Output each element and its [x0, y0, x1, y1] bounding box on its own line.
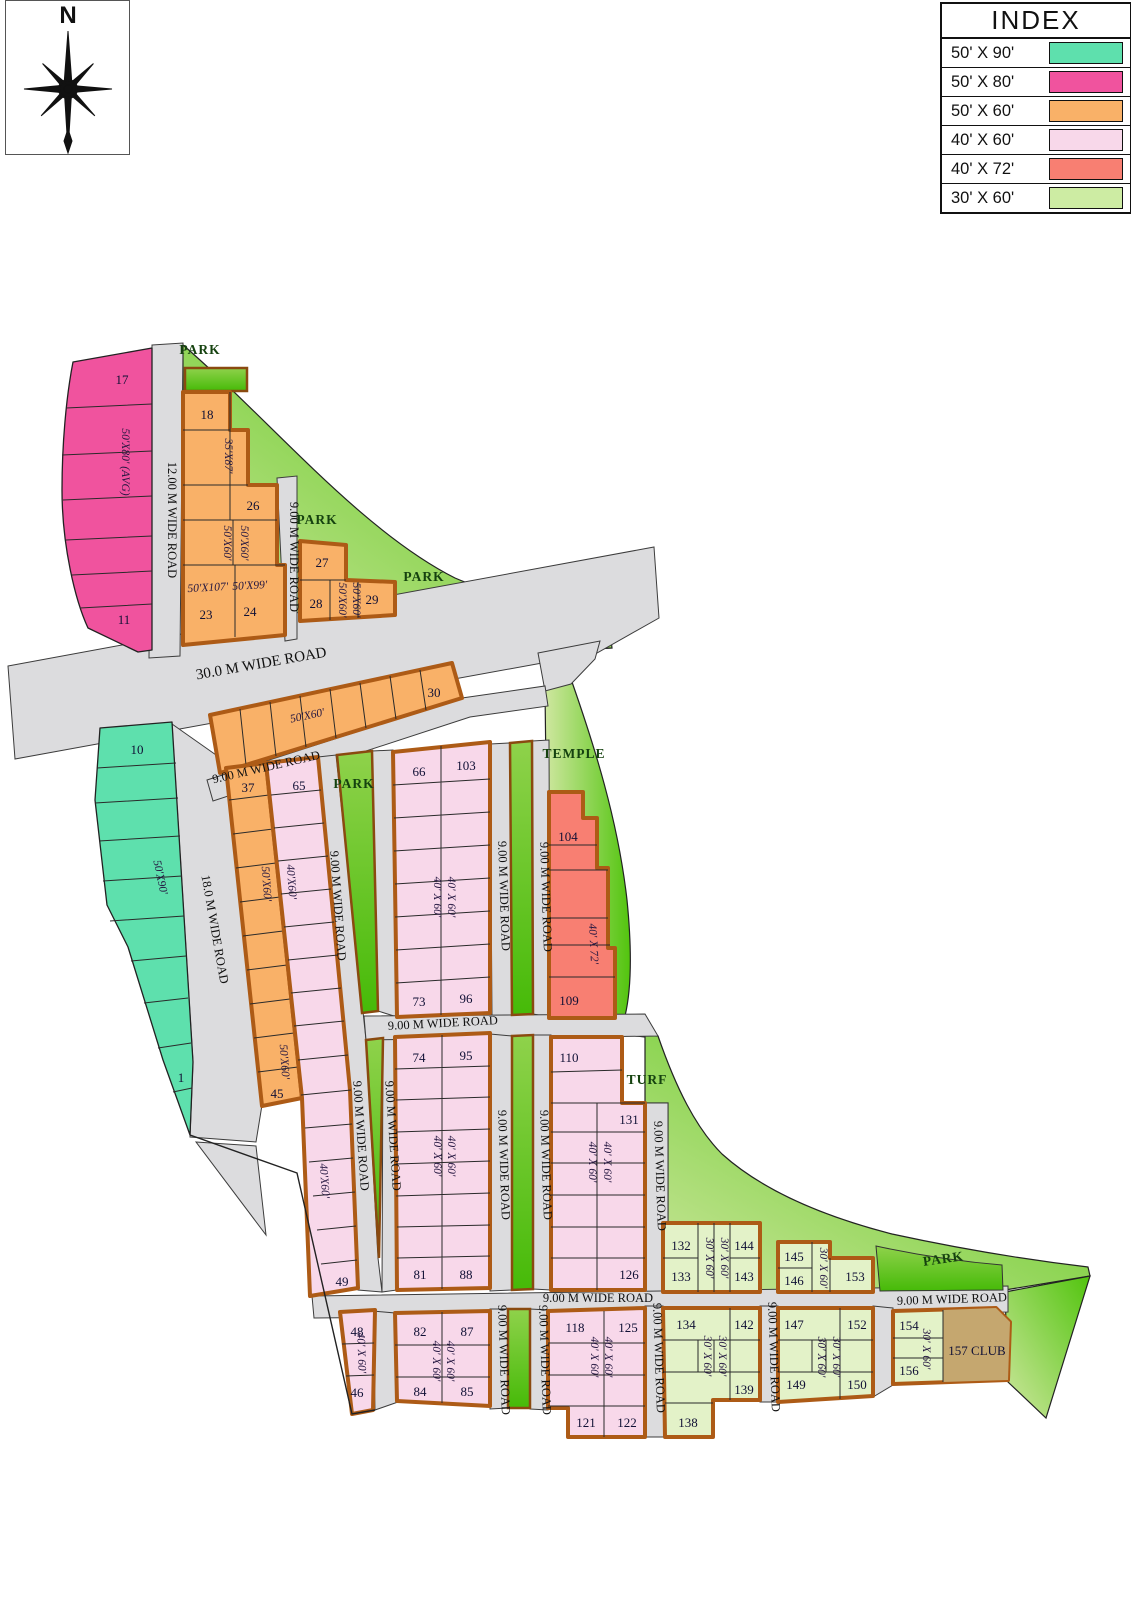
- size-label-40x60: 40' X 60': [602, 1337, 614, 1378]
- plot-46: 46: [351, 1385, 365, 1400]
- plot-30: 30: [428, 685, 441, 700]
- size-label-35x87: 35'X87': [222, 438, 234, 474]
- road-9m-vert-f: [873, 1306, 893, 1397]
- size-label-30x60: 30' X 60': [703, 1237, 715, 1279]
- size-label-30x60: 30' X 60': [718, 1237, 730, 1279]
- plot-18: 18: [201, 407, 214, 422]
- size-label-50x60: 50'X60': [277, 1044, 291, 1080]
- plot-17: 17: [116, 372, 130, 387]
- plot-84: 84: [414, 1384, 428, 1399]
- plot-82: 82: [414, 1324, 427, 1339]
- plot-104: 104: [558, 829, 578, 844]
- layout-map: 12.00 M WIDE ROAD 30.0 M WIDE ROAD 18.0 …: [0, 0, 1131, 1600]
- plot-49: 49: [336, 1274, 349, 1289]
- plot-122: 122: [617, 1415, 637, 1430]
- plot-66: 66: [413, 764, 427, 779]
- plot-126: 126: [619, 1267, 639, 1282]
- size-label-50x60: 50'X60': [350, 583, 362, 618]
- plot-142: 142: [734, 1317, 754, 1332]
- green-strip-d2: [512, 1035, 533, 1290]
- size-label-30x60: 30' X 60': [815, 1336, 827, 1378]
- plot-45: 45: [271, 1086, 284, 1101]
- plot-144: 144: [734, 1238, 754, 1253]
- plot-139: 139: [734, 1382, 754, 1397]
- green-strip-d1: [510, 741, 533, 1015]
- plot-81: 81: [414, 1267, 427, 1282]
- size-label-50x99: 50'X99': [232, 579, 268, 593]
- site-plan-page: N INDEX 50' X 90' 50' X 80' 50' X 60' 40…: [0, 0, 1131, 1600]
- plot-149: 149: [786, 1377, 806, 1392]
- plot-96: 96: [460, 991, 474, 1006]
- size-label-50x60: 50'X60': [336, 583, 348, 618]
- size-label-40x60: 40' X 60': [431, 1136, 443, 1177]
- plot-147: 147: [784, 1317, 804, 1332]
- road-label-12m: 12.00 M WIDE ROAD: [165, 462, 179, 578]
- plot-138: 138: [678, 1415, 698, 1430]
- plot-143: 143: [734, 1269, 754, 1284]
- plot-65: 65: [293, 778, 306, 793]
- plot-118: 118: [565, 1320, 584, 1335]
- plot-154: 154: [899, 1318, 919, 1333]
- plot-88: 88: [460, 1267, 473, 1282]
- park-cell-top: [185, 368, 247, 391]
- size-label-40x60: 40' X 60': [588, 1337, 600, 1378]
- plot-152: 152: [847, 1317, 867, 1332]
- plot-73: 73: [413, 994, 426, 1009]
- park-label: PARK: [403, 569, 444, 584]
- size-label-40x60: 40' X 60': [586, 1142, 598, 1183]
- plot-153: 153: [845, 1269, 865, 1284]
- park-label: PARK: [179, 342, 220, 357]
- size-label-40x60: 40' X 60': [444, 1341, 456, 1382]
- plot-103: 103: [456, 758, 476, 773]
- plot-110: 110: [559, 1050, 578, 1065]
- plot-27: 27: [316, 555, 330, 570]
- green-wedge-bottom-right: [1005, 1276, 1090, 1418]
- size-label-50x60: 50'X60': [221, 526, 233, 561]
- plot-95: 95: [460, 1048, 473, 1063]
- plot-150: 150: [847, 1377, 867, 1392]
- plot-48: 48: [351, 1324, 364, 1339]
- park-label: PARK: [296, 512, 337, 527]
- size-label-30x60: 30' X 60': [716, 1335, 728, 1377]
- plot-125: 125: [618, 1320, 638, 1335]
- size-label-40x60: 40' X 60': [445, 1136, 457, 1177]
- plot-11: 11: [118, 612, 131, 627]
- plot-28: 28: [310, 596, 323, 611]
- size-label-30x60: 30' X 60': [817, 1247, 829, 1289]
- size-label-50x107: 50'X107': [187, 581, 229, 595]
- size-label-40x60: 40'X60': [317, 1163, 331, 1199]
- size-label-40x60: 40' X 60': [430, 1341, 442, 1382]
- plot-1: 1: [178, 1070, 185, 1085]
- plot-121: 121: [576, 1415, 596, 1430]
- plot-85: 85: [461, 1384, 474, 1399]
- temple-label: TEMPLE: [542, 746, 605, 761]
- road-18m-stub: [196, 1142, 266, 1235]
- size-label-40x72: 40' X 72': [586, 923, 600, 965]
- size-label-50x80avg: 50'X80' (AVG): [119, 428, 131, 495]
- size-label-40x60: 40' X 60': [445, 877, 457, 918]
- plot-131: 131: [619, 1112, 639, 1127]
- plot-109: 109: [559, 993, 579, 1008]
- plot-132: 132: [671, 1238, 691, 1253]
- size-label-50x60: 50'X60': [238, 526, 250, 561]
- size-label-30x60: 30' X 60': [920, 1328, 932, 1370]
- road-label-9m: 9.00 M WIDE ROAD: [543, 1291, 653, 1305]
- plot-74: 74: [413, 1050, 427, 1065]
- plot-10: 10: [131, 742, 144, 757]
- size-label-40x60: 40' X 60': [601, 1142, 613, 1183]
- plot-87: 87: [461, 1324, 475, 1339]
- plot-133: 133: [671, 1269, 691, 1284]
- plot-37: 37: [242, 780, 256, 795]
- turf-label: TURF: [627, 1072, 668, 1087]
- plot-29: 29: [366, 592, 379, 607]
- plot-156: 156: [899, 1363, 919, 1378]
- plot-24: 24: [244, 604, 258, 619]
- plot-23: 23: [200, 607, 213, 622]
- plot-145: 145: [784, 1249, 804, 1264]
- plot-134: 134: [676, 1317, 696, 1332]
- size-label-30x60: 30' X 60': [830, 1336, 842, 1378]
- plot-146: 146: [784, 1273, 804, 1288]
- plot-157-club: 157 CLUB: [948, 1343, 1006, 1358]
- size-label-40x60: 40'X60': [284, 864, 298, 900]
- size-label-40x60: 40' X 60': [431, 877, 443, 918]
- plot-26: 26: [247, 498, 261, 513]
- size-label-30x60: 30' X 60': [701, 1335, 713, 1377]
- park-label: PARK: [333, 776, 374, 791]
- size-label-50x60: 50'X60': [259, 866, 273, 902]
